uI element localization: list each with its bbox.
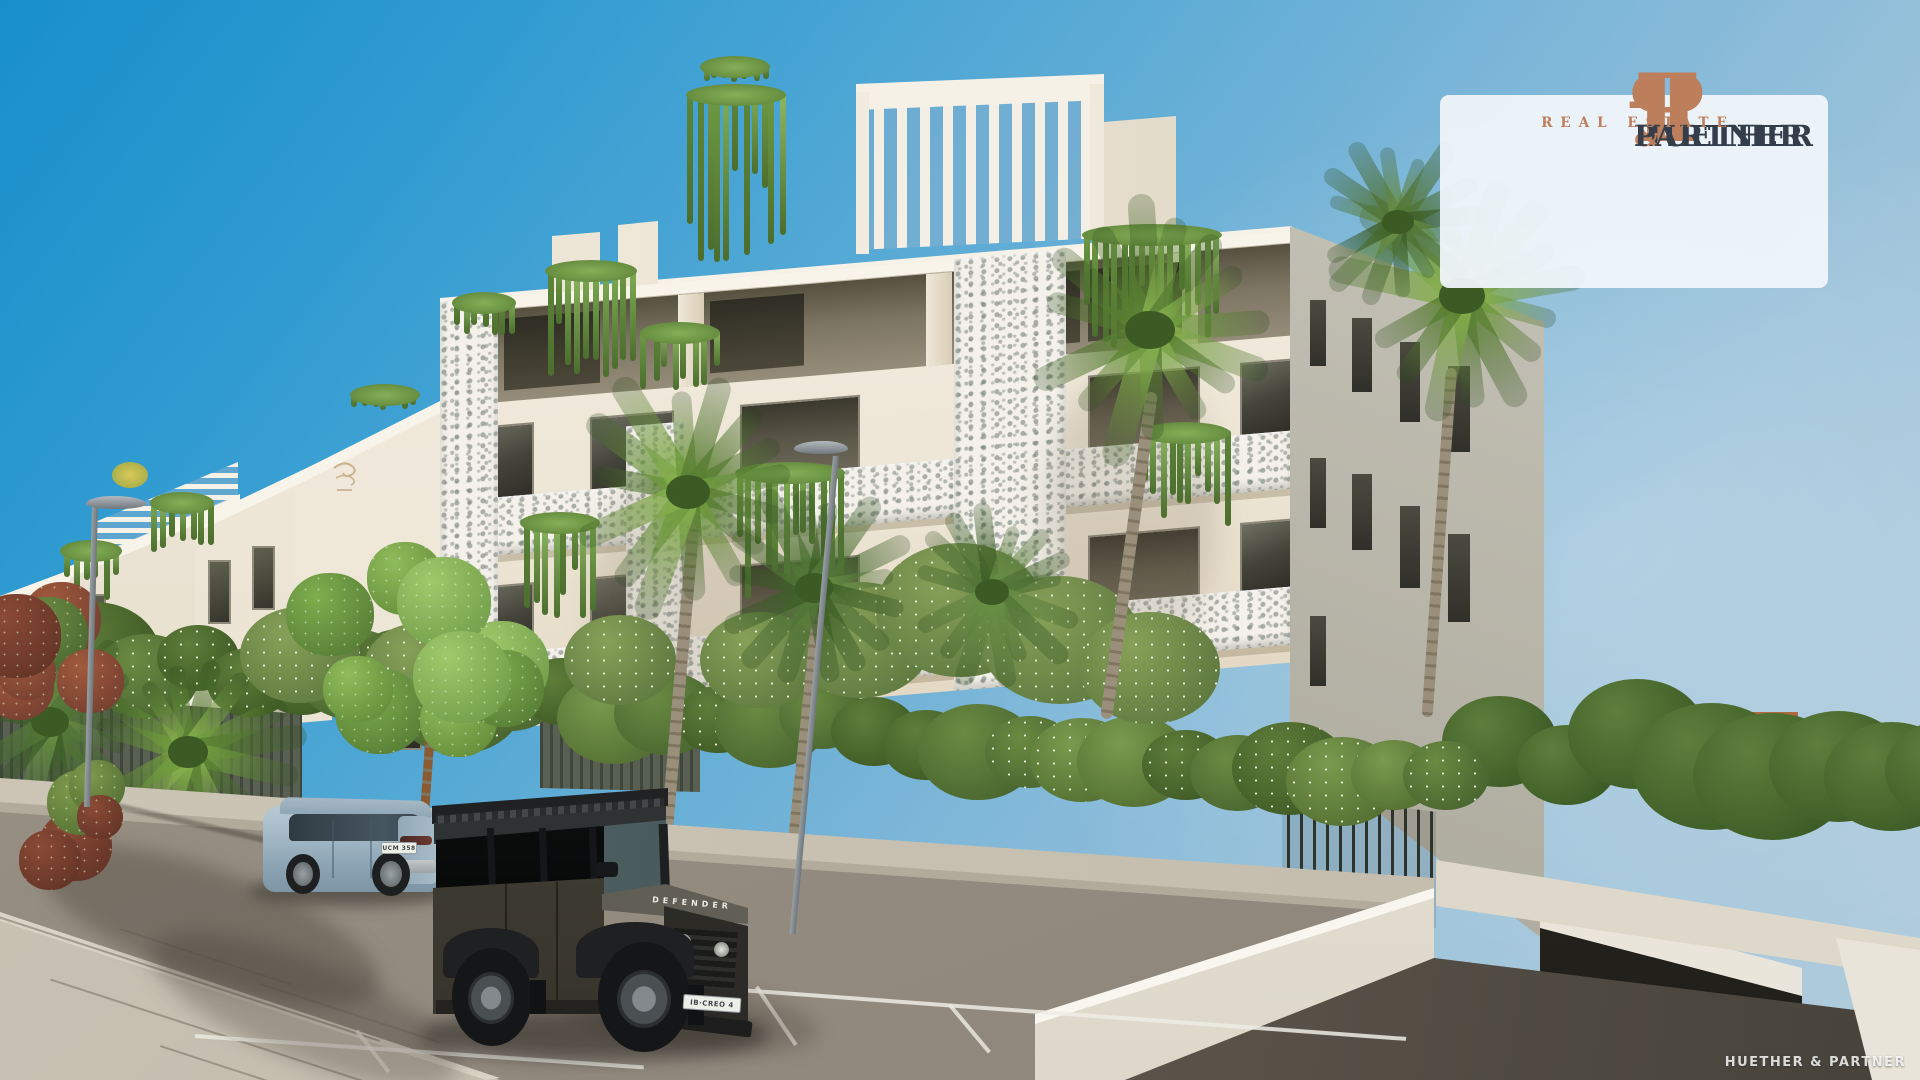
facade-attic-window bbox=[710, 293, 804, 373]
vine-strand bbox=[603, 268, 609, 377]
wind-swirl-emblem bbox=[330, 458, 360, 494]
balcony-vine bbox=[1140, 430, 1230, 530]
vine-strand bbox=[548, 268, 554, 376]
defender-door-line bbox=[556, 882, 558, 1004]
left-wing-window bbox=[208, 560, 231, 624]
left-wing-window bbox=[252, 546, 275, 610]
vine-strand bbox=[630, 268, 636, 361]
evoque-license-plate: UCM 358 bbox=[381, 842, 417, 854]
side-facade-window bbox=[1400, 506, 1420, 588]
vine-crown bbox=[350, 384, 420, 406]
vine-strand bbox=[714, 92, 720, 262]
vine-strand bbox=[612, 268, 618, 369]
wing-vine bbox=[150, 500, 214, 558]
evoque-door-line bbox=[332, 820, 334, 878]
evoque-rim bbox=[380, 861, 402, 887]
side-facade-window bbox=[1310, 300, 1326, 366]
vine-strand bbox=[708, 92, 714, 250]
vine-strand bbox=[780, 92, 786, 235]
defender-mudflap bbox=[530, 980, 546, 1014]
parapet-vine bbox=[452, 300, 516, 346]
vine-strand bbox=[762, 92, 768, 188]
roof-pergola-left-post bbox=[856, 92, 869, 254]
red-shrub-low-clump bbox=[19, 830, 81, 889]
street-tree-clump bbox=[323, 656, 392, 722]
palm-crown-core bbox=[1382, 210, 1414, 235]
vine-crown bbox=[640, 322, 720, 344]
wing-roof-plant bbox=[350, 392, 420, 420]
street-tree-clump bbox=[286, 573, 374, 656]
vine-strand bbox=[1225, 430, 1231, 526]
vine-strand bbox=[524, 520, 530, 608]
company-logo-card: P-P HUETHER&PARTNER REAL ESTATE bbox=[1440, 95, 1828, 288]
vine-strand bbox=[1161, 430, 1167, 518]
palm-crown-core bbox=[975, 579, 1009, 605]
roof-pergola-right-post bbox=[1090, 84, 1104, 240]
parapet-vine bbox=[686, 92, 786, 262]
palm-crown-core bbox=[1125, 311, 1175, 350]
evoque-rim bbox=[293, 862, 313, 886]
side-facade-window bbox=[1310, 458, 1326, 528]
street-lamp-head bbox=[86, 496, 146, 509]
company-tagline: REAL ESTATE bbox=[1533, 115, 1735, 131]
defender-mirror bbox=[596, 862, 618, 877]
vine-crown bbox=[150, 492, 214, 514]
vine-crown bbox=[545, 260, 637, 282]
vine-crown bbox=[452, 292, 516, 314]
side-facade-window bbox=[1352, 318, 1372, 392]
hedge-bush bbox=[564, 615, 676, 705]
vine-strand bbox=[574, 268, 580, 374]
defender-rim bbox=[617, 970, 671, 1028]
facade-window bbox=[1240, 518, 1292, 596]
roof-plant-tuft bbox=[700, 64, 770, 94]
side-facade-window bbox=[1448, 534, 1470, 622]
vine-strand bbox=[698, 92, 704, 261]
street-lamp-head bbox=[794, 441, 848, 454]
vine-strand bbox=[620, 268, 626, 360]
vine-strand bbox=[542, 520, 548, 615]
scene-apartment-building-render: DEFENDER IB·CREO 4 UCM 358 P-P HUETHER&P… bbox=[0, 0, 1920, 1080]
defender-rim bbox=[468, 972, 514, 1024]
wing-yellow-plant bbox=[112, 462, 148, 488]
facade-attic-pillar bbox=[926, 272, 952, 366]
palm-crown-core bbox=[168, 736, 208, 767]
vine-strand bbox=[768, 92, 774, 244]
vine-crown bbox=[700, 56, 770, 78]
photo-watermark: HUETHER & PARTNER bbox=[1725, 1055, 1906, 1070]
vine-strand bbox=[565, 268, 571, 365]
side-facade-window bbox=[1310, 616, 1326, 686]
side-facade-window bbox=[1352, 474, 1372, 550]
vine-strand bbox=[744, 92, 750, 255]
street-tree-clump bbox=[413, 631, 510, 724]
vine-strand bbox=[554, 520, 560, 618]
vine-strand bbox=[723, 92, 729, 261]
vine-strand bbox=[687, 92, 693, 224]
parapet-vine bbox=[545, 268, 637, 388]
defender-headlight bbox=[714, 942, 729, 957]
